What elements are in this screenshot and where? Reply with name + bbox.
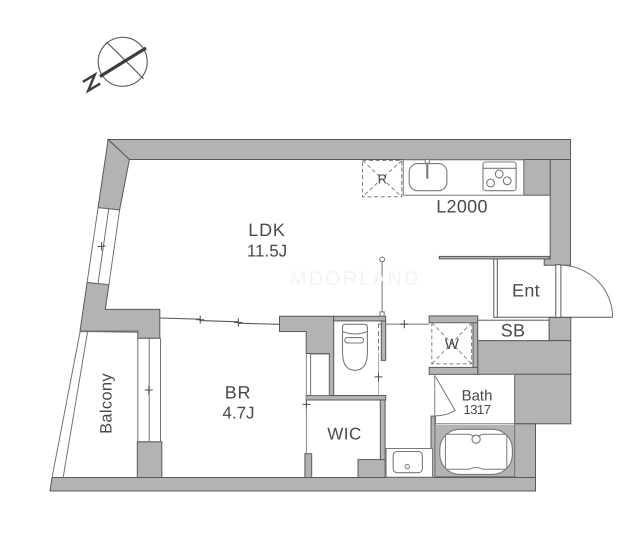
svg-text:L2000: L2000	[436, 197, 488, 217]
svg-text:11.5J: 11.5J	[247, 241, 287, 260]
svg-text:4.7J: 4.7J	[222, 403, 254, 422]
svg-text:W: W	[445, 336, 460, 353]
svg-text:MDORLAND: MDORLAND	[290, 268, 420, 290]
svg-text:SB: SB	[501, 321, 526, 341]
svg-text:WIC: WIC	[327, 424, 362, 443]
svg-text:Balcony: Balcony	[98, 373, 116, 434]
svg-text:Ent: Ent	[512, 280, 540, 300]
svg-text:LDK: LDK	[248, 220, 285, 240]
svg-text:R: R	[378, 172, 387, 187]
svg-text:1317: 1317	[464, 402, 491, 417]
svg-text:BR: BR	[225, 382, 252, 402]
